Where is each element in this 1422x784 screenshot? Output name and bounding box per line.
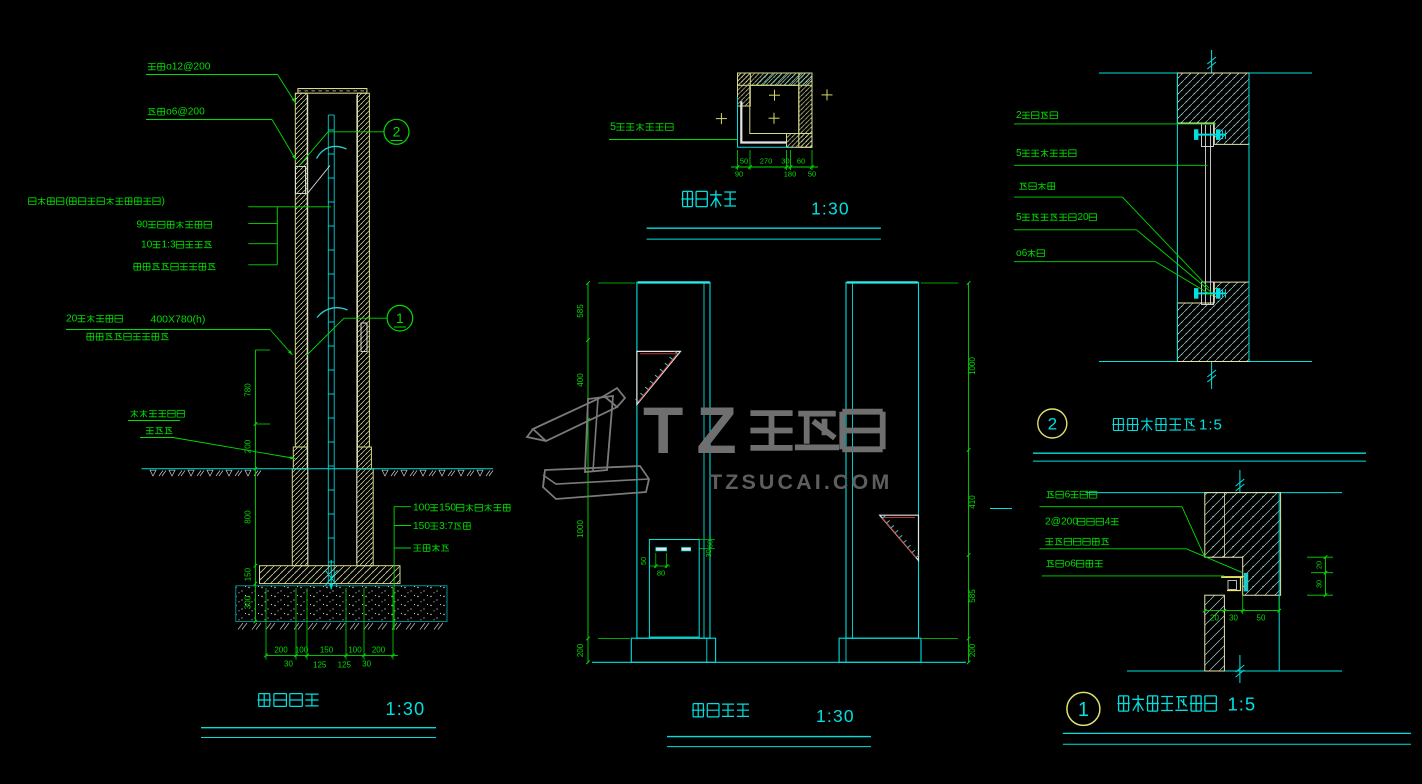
svg-text:50: 50 bbox=[1257, 614, 1266, 623]
svg-text:180: 180 bbox=[784, 170, 797, 179]
svg-text:1:5: 1:5 bbox=[1228, 694, 1257, 715]
svg-text:): ) bbox=[162, 196, 165, 207]
svg-text:125: 125 bbox=[313, 661, 327, 670]
svg-text:400: 400 bbox=[576, 373, 585, 387]
svg-text:30: 30 bbox=[284, 660, 293, 669]
svg-text:30: 30 bbox=[781, 157, 789, 166]
svg-text:1:3: 1:3 bbox=[162, 240, 176, 251]
svg-text:4: 4 bbox=[1105, 517, 1111, 528]
svg-text:5: 5 bbox=[610, 121, 616, 133]
svg-text:20: 20 bbox=[66, 314, 78, 325]
svg-text:400X780(h): 400X780(h) bbox=[151, 314, 206, 326]
svg-text:2: 2 bbox=[1016, 110, 1022, 121]
svg-text:2@200: 2@200 bbox=[1045, 517, 1078, 528]
svg-text:100: 100 bbox=[413, 503, 430, 514]
svg-text:80: 80 bbox=[657, 569, 665, 578]
svg-text:2: 2 bbox=[393, 124, 401, 140]
svg-text:10: 10 bbox=[141, 240, 153, 251]
svg-text:150: 150 bbox=[244, 567, 253, 581]
svg-text:20: 20 bbox=[1077, 212, 1089, 223]
svg-text:780: 780 bbox=[244, 383, 253, 397]
svg-text:1000: 1000 bbox=[576, 520, 585, 538]
svg-text:30: 30 bbox=[1315, 580, 1324, 588]
svg-text:50: 50 bbox=[740, 157, 748, 166]
svg-text:100: 100 bbox=[295, 646, 309, 655]
svg-text:3:7: 3:7 bbox=[439, 521, 453, 532]
svg-text:100: 100 bbox=[348, 646, 362, 655]
svg-text:60: 60 bbox=[797, 157, 805, 166]
svg-text:150: 150 bbox=[320, 646, 334, 655]
svg-text:1: 1 bbox=[396, 310, 404, 326]
svg-text:1:5: 1:5 bbox=[1199, 417, 1223, 434]
svg-text:30: 30 bbox=[704, 549, 713, 557]
svg-text:50: 50 bbox=[808, 170, 816, 179]
svg-text:5: 5 bbox=[1016, 212, 1022, 223]
svg-text:6: 6 bbox=[1065, 490, 1071, 501]
svg-text:270: 270 bbox=[760, 157, 773, 166]
svg-text:o6: o6 bbox=[1065, 559, 1077, 570]
svg-text:60: 60 bbox=[706, 540, 715, 548]
svg-text:5: 5 bbox=[1016, 148, 1022, 159]
svg-text:585: 585 bbox=[576, 304, 585, 318]
svg-text:2: 2 bbox=[1048, 415, 1057, 434]
svg-text:TZ: TZ bbox=[643, 393, 750, 467]
svg-text:20: 20 bbox=[1315, 561, 1324, 569]
svg-text:125: 125 bbox=[338, 661, 352, 670]
svg-text:200: 200 bbox=[576, 643, 585, 657]
svg-text:TZSUCAI.COM: TZSUCAI.COM bbox=[709, 470, 892, 494]
svg-text:o6: o6 bbox=[1016, 248, 1028, 259]
svg-text:o6@200: o6@200 bbox=[166, 107, 205, 118]
svg-text:150: 150 bbox=[439, 503, 456, 514]
svg-text:410: 410 bbox=[968, 495, 977, 509]
svg-text:30: 30 bbox=[362, 660, 371, 669]
svg-text:200: 200 bbox=[968, 643, 977, 657]
svg-text:585: 585 bbox=[968, 589, 977, 603]
svg-text:200: 200 bbox=[244, 439, 253, 453]
svg-text:50: 50 bbox=[639, 557, 648, 565]
svg-text:1000: 1000 bbox=[968, 357, 977, 375]
svg-text:200: 200 bbox=[372, 646, 386, 655]
svg-text:150: 150 bbox=[413, 521, 430, 532]
svg-text:800: 800 bbox=[244, 510, 253, 524]
svg-text:200: 200 bbox=[274, 646, 288, 655]
svg-text:90: 90 bbox=[735, 170, 743, 179]
svg-text:30: 30 bbox=[1229, 614, 1238, 623]
svg-text:90: 90 bbox=[137, 220, 149, 231]
svg-text:(: ( bbox=[65, 196, 69, 207]
svg-text:1:30: 1:30 bbox=[386, 699, 426, 719]
svg-text:1: 1 bbox=[1078, 699, 1089, 721]
svg-text:1:30: 1:30 bbox=[816, 706, 855, 726]
svg-text:300: 300 bbox=[244, 595, 253, 609]
svg-text:1:30: 1:30 bbox=[811, 199, 850, 219]
svg-text:20: 20 bbox=[1210, 614, 1219, 623]
svg-text:o12@200: o12@200 bbox=[166, 62, 211, 73]
